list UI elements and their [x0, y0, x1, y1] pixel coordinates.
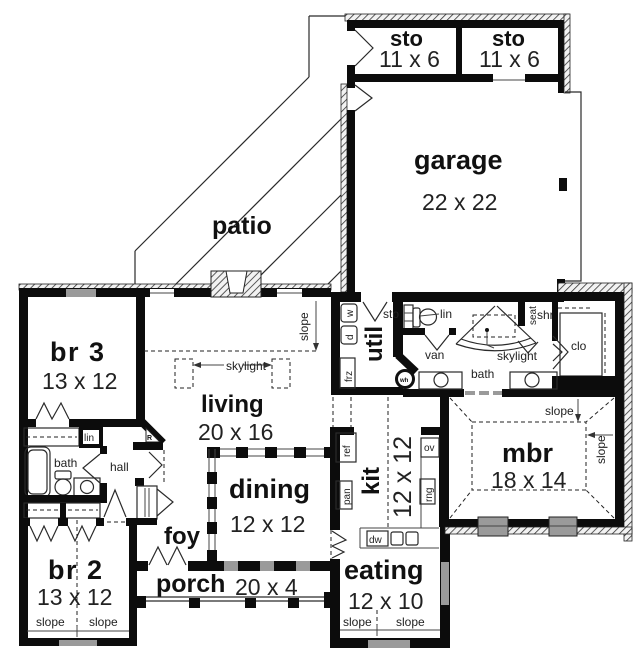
- svg-text:rng: rng: [424, 488, 435, 502]
- svg-text:shr: shr: [537, 308, 554, 322]
- svg-text:foy: foy: [164, 523, 201, 550]
- svg-text:w: w: [345, 309, 356, 318]
- svg-text:dw: dw: [369, 535, 383, 546]
- svg-text:20 x 16: 20 x 16: [198, 419, 273, 445]
- svg-text:ref: ref: [342, 445, 353, 457]
- svg-text:22 x 22: 22 x 22: [422, 189, 497, 215]
- svg-text:util: util: [361, 326, 388, 362]
- svg-text:11 x 6: 11 x 6: [379, 46, 440, 72]
- svg-text:br 2: br 2: [48, 555, 104, 585]
- svg-text:13 x 12: 13 x 12: [42, 368, 117, 394]
- svg-text:slope: slope: [396, 615, 425, 629]
- svg-text:kit: kit: [358, 467, 385, 495]
- svg-text:garage: garage: [414, 145, 503, 175]
- svg-text:12 x 12: 12 x 12: [230, 511, 305, 537]
- svg-text:sto: sto: [383, 307, 399, 321]
- svg-text:12 x 12: 12 x 12: [389, 436, 417, 518]
- svg-text:skylight: skylight: [226, 359, 267, 373]
- svg-text:mbr: mbr: [502, 438, 554, 468]
- svg-text:18 x 14: 18 x 14: [491, 467, 567, 493]
- svg-text:d: d: [345, 334, 356, 340]
- svg-text:20 x 4: 20 x 4: [235, 574, 298, 600]
- svg-text:eating: eating: [344, 555, 424, 585]
- svg-text:slope: slope: [297, 312, 311, 341]
- svg-text:bath: bath: [471, 367, 494, 381]
- svg-text:frz: frz: [344, 371, 355, 382]
- svg-text:living: living: [201, 391, 264, 418]
- svg-text:porch: porch: [156, 570, 225, 598]
- svg-text:ov: ov: [424, 443, 435, 454]
- svg-text:clo: clo: [571, 339, 587, 353]
- svg-text:R: R: [147, 435, 152, 442]
- svg-text:pan: pan: [342, 488, 353, 505]
- svg-text:hall: hall: [110, 460, 129, 474]
- svg-text:van: van: [425, 348, 444, 362]
- svg-text:slope: slope: [343, 615, 372, 629]
- svg-text:13 x 12: 13 x 12: [37, 584, 112, 610]
- svg-text:lin: lin: [440, 307, 452, 321]
- svg-text:skylight: skylight: [497, 349, 538, 363]
- svg-text:bath: bath: [54, 456, 77, 470]
- svg-text:dining: dining: [229, 474, 310, 504]
- svg-text:slope: slope: [545, 404, 574, 418]
- svg-text:br 3: br 3: [50, 337, 106, 367]
- svg-text:11 x 6: 11 x 6: [479, 46, 540, 72]
- svg-text:slope: slope: [594, 435, 608, 464]
- svg-text:patio: patio: [212, 212, 272, 240]
- svg-text:slope: slope: [89, 615, 118, 629]
- svg-text:wh: wh: [399, 378, 409, 384]
- svg-text:slope: slope: [36, 615, 65, 629]
- svg-text:lin: lin: [84, 433, 94, 444]
- svg-text:12 x 10: 12 x 10: [348, 588, 423, 614]
